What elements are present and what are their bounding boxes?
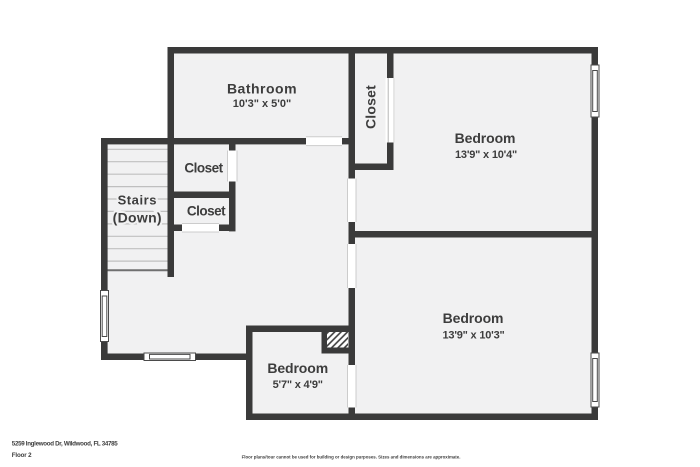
svg-text:Stairs: Stairs bbox=[118, 193, 157, 208]
svg-text:13'9" x 10'4": 13'9" x 10'4" bbox=[455, 149, 517, 161]
svg-text:Bedroom: Bedroom bbox=[455, 130, 516, 146]
svg-text:Floor plans/tour cannot be use: Floor plans/tour cannot be used for buil… bbox=[242, 455, 461, 460]
svg-text:Bathroom: Bathroom bbox=[227, 81, 297, 97]
svg-text:10'3" x 5'0": 10'3" x 5'0" bbox=[233, 98, 291, 110]
svg-text:Closet: Closet bbox=[187, 204, 226, 219]
svg-text:5'7" x 4'9": 5'7" x 4'9" bbox=[273, 379, 323, 391]
svg-text:Floor 2: Floor 2 bbox=[12, 452, 32, 459]
svg-text:Closet: Closet bbox=[184, 161, 223, 176]
svg-text:Bedroom: Bedroom bbox=[443, 310, 504, 326]
svg-text:5259 Inglewood Dr, Wildwood, F: 5259 Inglewood Dr, Wildwood, FL 34785 bbox=[12, 440, 118, 447]
svg-text:(Down): (Down) bbox=[113, 210, 162, 226]
svg-text:Bedroom: Bedroom bbox=[267, 360, 328, 376]
svg-text:Closet: Closet bbox=[363, 85, 379, 129]
svg-text:13'9" x 10'3": 13'9" x 10'3" bbox=[443, 330, 505, 342]
